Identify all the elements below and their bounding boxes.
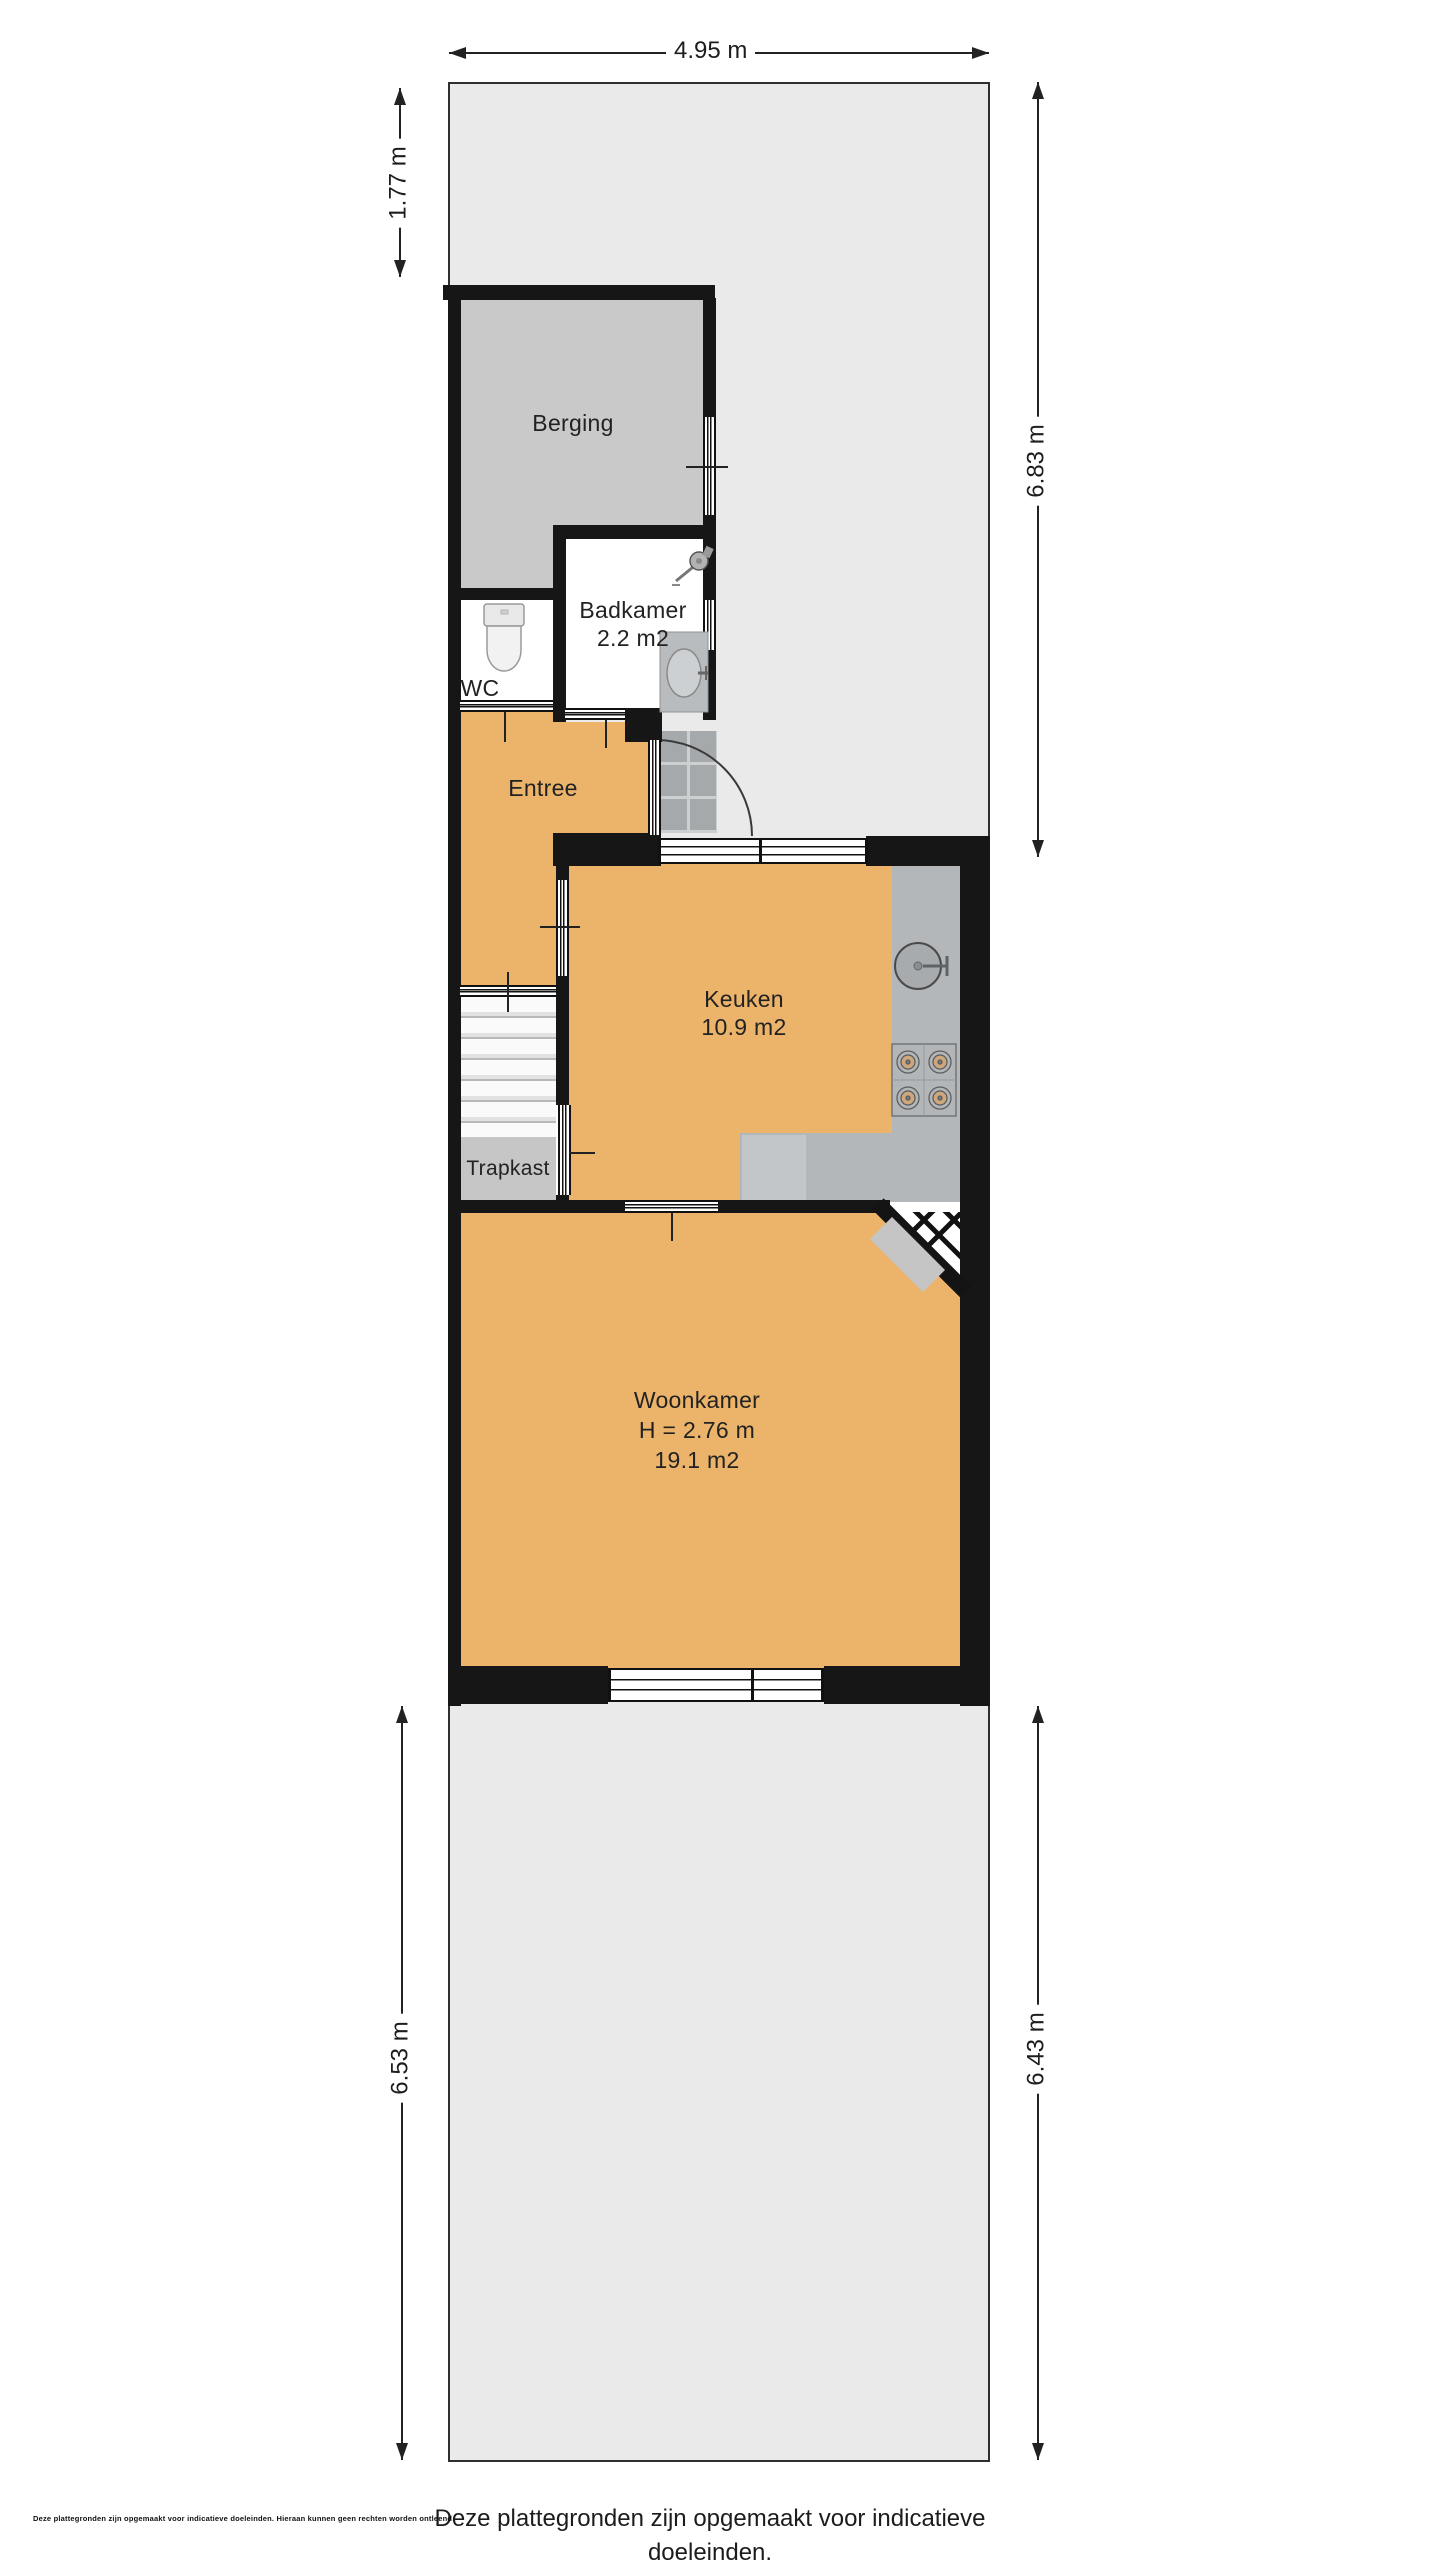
badkamer-area: 2.2 m2 (533, 624, 733, 652)
dim-backleft-label: 6.53 m (386, 2013, 416, 2102)
wall-front-left (553, 833, 661, 866)
room-label-entree: Entree (443, 774, 643, 802)
wall-bottom-right (824, 1666, 990, 1704)
berging-door-tick (686, 466, 728, 468)
dim-backleft-arrow-top (396, 1706, 408, 1723)
dim-frontleft-label: 1.77 m (384, 138, 414, 227)
dim-top-arrow-left (449, 47, 466, 59)
door-swing-arc (650, 735, 770, 845)
dim-frontright-label: 6.83 m (1022, 416, 1052, 505)
back-garden (448, 1700, 990, 2462)
kitchen-sink-icon (890, 938, 962, 998)
room-label-keuken: Keuken 10.9 m2 (644, 985, 844, 1041)
keuken-woonkamer-door (625, 1200, 718, 1213)
floorplan-page: Berging Badkamer 2.2 m2 WC Entree Keuken… (0, 0, 1440, 2560)
dim-top-label: 4.95 m (666, 36, 755, 66)
dim-backright-arrow-top (1032, 1706, 1044, 1723)
stairs-band-tick (507, 972, 509, 1012)
dim-top-arrow-right (972, 47, 989, 59)
dim-frontright-arrow-top (1032, 82, 1044, 99)
keuken-area: 10.9 m2 (644, 1013, 844, 1041)
wall-berging-right-a (703, 298, 716, 417)
wall-badkamer-top (553, 525, 715, 539)
entree-keuken-door-tick (540, 926, 580, 928)
wall-bottom-left (448, 1666, 608, 1704)
kitchen-appliance (742, 1135, 806, 1200)
wall-badkamer-bottom (625, 708, 662, 742)
room-label-wc: WC (430, 674, 530, 702)
dim-backright-label: 6.43 m (1022, 2004, 1052, 2093)
room-label-woonkamer: Woonkamer H = 2.76 m 19.1 m2 (577, 1385, 817, 1475)
toilet-icon (480, 600, 530, 680)
entree-keuken-door (556, 880, 569, 976)
dim-backright-arrow-bottom (1032, 2443, 1044, 2460)
keuken-woonkamer-door-tick (671, 1213, 673, 1241)
keuken-front-window (658, 838, 868, 864)
stove-icon (890, 1042, 962, 1118)
front-door (648, 740, 661, 835)
badkamer-door (565, 708, 625, 720)
wall-berging-top (443, 285, 715, 300)
dim-backleft-arrow-bottom (396, 2443, 408, 2460)
kitchen-counter-right (892, 864, 960, 1202)
badkamer-door-tick (605, 720, 607, 748)
staircase (461, 997, 556, 1137)
trapkast-door-tick (569, 1152, 595, 1154)
dim-frontright-arrow-bottom (1032, 840, 1044, 857)
wall-mid-a (556, 833, 569, 880)
woonkamer-back-window (608, 1668, 824, 1702)
room-label-berging: Berging (473, 409, 673, 437)
wall-front-right (866, 836, 962, 866)
wc-door-tick (504, 712, 506, 742)
room-label-badkamer: Badkamer 2.2 m2 (533, 596, 733, 652)
room-label-trapkast: Trapkast (428, 1155, 588, 1183)
fine-print-disclaimer: Deze plattegronden zijn opgemaakt voor i… (33, 2514, 452, 2523)
corner-door (850, 1192, 990, 1322)
wall-keuken-woon-left (461, 1200, 625, 1213)
keuken-name: Keuken (644, 985, 844, 1013)
woonkamer-name: Woonkamer (577, 1385, 817, 1415)
badkamer-name: Badkamer (533, 596, 733, 624)
shower-icon (668, 545, 714, 593)
footer-disclaimer: Deze plattegronden zijn opgemaakt voor i… (370, 2502, 1050, 2560)
woonkamer-area: 19.1 m2 (577, 1445, 817, 1475)
woonkamer-height: H = 2.76 m (577, 1415, 817, 1445)
dim-frontleft-arrow-top (394, 88, 406, 105)
dim-frontleft-arrow-bottom (394, 260, 406, 277)
wall-mid-b (556, 976, 569, 1105)
footer-line1: Deze plattegronden zijn opgemaakt voor i… (370, 2502, 1050, 2560)
room-entree-floor (461, 710, 558, 987)
